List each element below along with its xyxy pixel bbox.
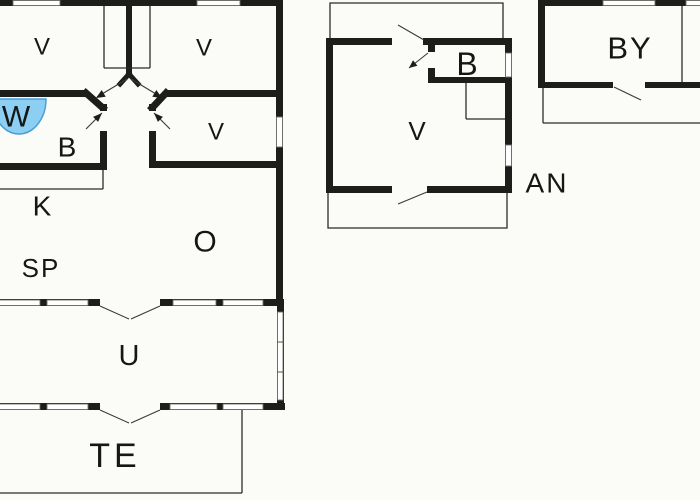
outbuilding-left-wall bbox=[538, 0, 545, 88]
annex-left-wall bbox=[326, 38, 333, 193]
window-top-right bbox=[197, 1, 240, 6]
annex-bath-door-gap bbox=[428, 52, 436, 68]
bath-top-wall bbox=[0, 90, 86, 97]
room-label-kitchen: K bbox=[33, 191, 52, 222]
room-label-dining: SP bbox=[22, 253, 61, 283]
glazing-south1-a bbox=[0, 300, 40, 306]
conservatory-door-swing-left bbox=[100, 410, 129, 423]
room-label-annex-bath: B bbox=[456, 46, 477, 82]
living-door-swing-right bbox=[131, 306, 160, 319]
bedroom3-top-wall bbox=[165, 90, 276, 97]
outbuilding-door-swing bbox=[614, 87, 641, 100]
room-label-bedroom-top-right: V bbox=[196, 35, 212, 62]
room-label-conservatory: U bbox=[119, 340, 140, 372]
annex-window-right-1 bbox=[506, 53, 512, 77]
main-house bbox=[0, 0, 285, 493]
room-label-bedroom-mid-right: V bbox=[208, 119, 224, 146]
glazing-south2-d bbox=[223, 404, 263, 410]
entry-center-wall bbox=[126, 0, 132, 76]
window-top-left bbox=[13, 1, 60, 6]
glazing-south1-c bbox=[173, 300, 216, 306]
room-label-bathroom: B bbox=[58, 132, 77, 163]
glazing-south2-a bbox=[0, 404, 40, 410]
annex-bath-door-arrow bbox=[409, 60, 417, 68]
window-right-bedroom3 bbox=[277, 117, 283, 147]
outbuilding-window-top-right bbox=[686, 1, 700, 6]
glazing-south1-d bbox=[223, 300, 263, 306]
annex-south-door-gap bbox=[392, 186, 427, 194]
glazing-south2-b bbox=[47, 404, 88, 410]
annex-south-porch bbox=[328, 193, 507, 228]
door-gap-conservatory-to-terrace bbox=[100, 403, 160, 411]
annex-window-right-2 bbox=[506, 145, 512, 166]
conservatory-door-swing-right bbox=[131, 410, 160, 423]
living-door-swing-left bbox=[100, 306, 129, 319]
outbuilding-window-top bbox=[603, 1, 655, 6]
annex-entry-door-gap bbox=[392, 38, 423, 46]
annex-tag: AN bbox=[526, 168, 569, 199]
annex-south-door-swing bbox=[398, 192, 427, 204]
main-right-wall bbox=[276, 0, 283, 306]
room-label-outbuilding: BY bbox=[607, 31, 652, 66]
room-label-annex-room: V bbox=[408, 116, 426, 146]
floorplan-drawing: V V W B V K SP O U TE V B AN BY bbox=[0, 0, 700, 500]
glazing-south1-b bbox=[47, 300, 88, 306]
room-label-wc: W bbox=[2, 101, 31, 134]
entry-door-arrow-left bbox=[96, 90, 106, 98]
glazing-south2-c bbox=[170, 404, 217, 410]
outbuilding-door-gap bbox=[613, 82, 645, 89]
room-label-bedroom-top-left: V bbox=[34, 34, 50, 61]
door-gap-living-to-conservatory bbox=[100, 299, 160, 307]
annex-north-porch bbox=[330, 3, 503, 38]
bedroom3-bottom-wall bbox=[149, 161, 276, 168]
room-label-living: O bbox=[193, 226, 216, 259]
glazing-conservatory-east bbox=[278, 312, 284, 400]
room-label-terrace: TE bbox=[89, 437, 140, 475]
bath-bottom-wall bbox=[0, 163, 107, 170]
floorplan-canvas: V V W B V K SP O U TE V B AN BY bbox=[0, 0, 700, 500]
